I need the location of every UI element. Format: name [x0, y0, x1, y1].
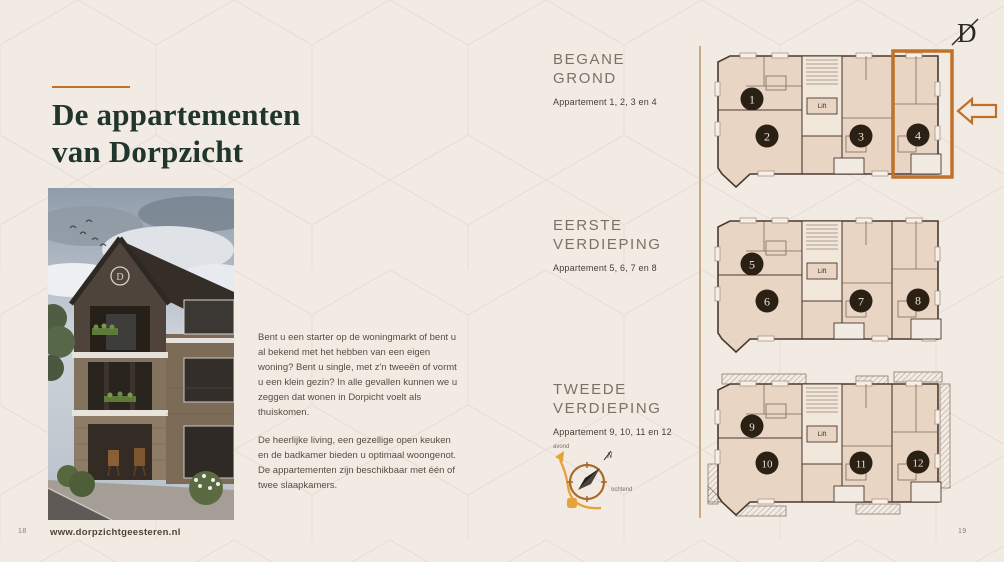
unit-badge: 9: [749, 422, 755, 434]
unit-badge: 3: [858, 130, 864, 144]
intro-text: Bent u een starter op de woningmarkt of …: [258, 330, 463, 493]
floorplan-begane-grond: Lift 1 2 3 4: [706, 40, 956, 195]
unit-badge: 11: [856, 459, 867, 471]
building-render-image: D: [48, 188, 234, 520]
unit-badge: 8: [915, 294, 921, 308]
svg-text:ochtend: ochtend: [611, 487, 632, 493]
svg-text:D: D: [116, 272, 123, 283]
unit-badge: 5: [749, 258, 755, 272]
unit-badge: 7: [858, 295, 864, 309]
section-title: TWEEDE VERDIEPING: [553, 380, 703, 418]
paragraph-2: De heerlijke living, een gezellige open …: [258, 433, 463, 493]
page-number-right: 19: [958, 528, 967, 535]
vertical-divider: [699, 46, 701, 518]
unit-badge: 1: [749, 93, 755, 107]
section-title: BEGANE GROND: [553, 50, 703, 88]
section-subtitle: Appartement 1, 2, 3 en 4: [553, 97, 703, 107]
unit-badge: 10: [762, 459, 774, 471]
brochure-spread: De appartementen van Dorpzicht: [0, 0, 1004, 562]
unit-badge: 6: [764, 295, 770, 309]
title-accent-line: [52, 86, 130, 88]
title-line1: De appartementen: [52, 97, 301, 132]
website-link[interactable]: www.dorpzichtgeesteren.nl: [50, 527, 181, 538]
section-begane-grond: BEGANE GROND Appartement 1, 2, 3 en 4: [553, 50, 703, 107]
unit-badge: 2: [764, 130, 770, 144]
page-title: De appartementen van Dorpzicht: [52, 96, 382, 170]
floorplan-tweede-verdieping: Lift 9 10 11 12: [706, 368, 956, 525]
compass-icon: avond ochtend N: [545, 438, 645, 526]
unit-badge: 12: [913, 458, 924, 470]
lift-label: Lift: [818, 103, 827, 110]
section-tweede-verdieping: TWEEDE VERDIEPING Appartement 9, 10, 11 …: [553, 380, 703, 437]
lift-label: Lift: [818, 431, 827, 438]
floorplan-eerste-verdieping: Lift 5 6 7 8: [706, 205, 956, 360]
lift-label: Lift: [818, 268, 827, 275]
section-subtitle: Appartement 5, 6, 7 en 8: [553, 263, 703, 273]
title-line2: van Dorpzicht: [52, 134, 243, 169]
section-subtitle: Appartement 9, 10, 11 en 12: [553, 427, 703, 437]
section-eerste-verdieping: EERSTE VERDIEPING Appartement 5, 6, 7 en…: [553, 216, 703, 273]
unit-badge: 4: [915, 129, 921, 143]
svg-text:avond: avond: [553, 444, 569, 450]
paragraph-1: Bent u een starter op de woningmarkt of …: [258, 330, 463, 420]
page-number-left: 18: [18, 528, 27, 535]
section-title: EERSTE VERDIEPING: [553, 216, 703, 254]
highlight-arrow-icon: [956, 96, 998, 126]
